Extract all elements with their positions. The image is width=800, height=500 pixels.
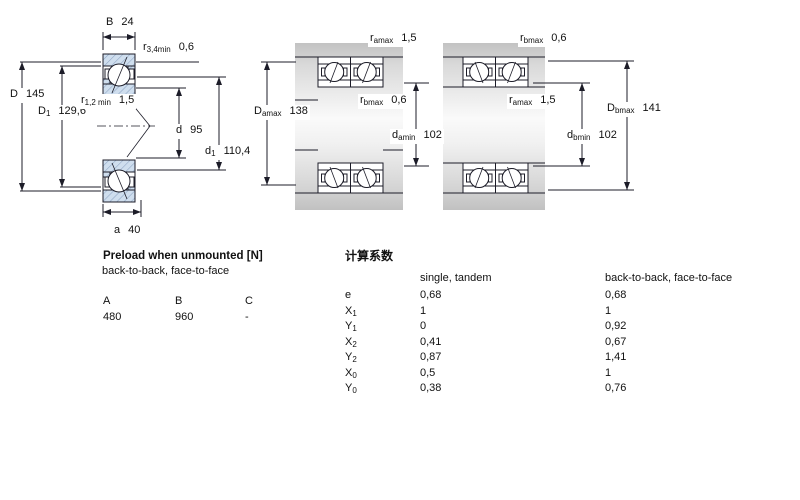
dim-subscript: amax [513, 98, 533, 107]
factor-value-single: 0,87 [420, 351, 441, 363]
factor-value-single: 0 [420, 320, 426, 332]
dim-label-Dbmax: Dbmax141 [605, 102, 663, 117]
dim-label-ramax-mid: ramax1,5 [368, 32, 419, 47]
paired-arrangement-view [443, 43, 634, 210]
dim-subscript: 1 [46, 109, 50, 118]
dim-value: 1,5 [540, 94, 555, 106]
dim-value: 1,5 [119, 94, 134, 106]
factor-row-X0: X00,51 [345, 367, 765, 383]
preload-subtitle: back-to-back, face-to-face [102, 265, 229, 278]
dim-subscript: 1,2 min [85, 98, 111, 107]
dim-label-d: d95 [174, 124, 204, 139]
dim-subscript: bmax [615, 106, 635, 115]
factor-symbol: X2 [345, 336, 357, 349]
factor-row-X2: X20,410,67 [345, 336, 765, 352]
factor-symbol: X0 [345, 367, 357, 380]
single-bearing-cross-section [97, 54, 155, 202]
preload-col-C: C [245, 295, 253, 308]
dim-label-B: B24 [104, 16, 136, 31]
dim-symbol: D [254, 105, 262, 117]
dim-value: 0,6 [391, 94, 406, 106]
factor-symbol: e [345, 289, 351, 302]
factor-symbol-sub: 2 [352, 355, 356, 364]
factor-value-paired: 1 [605, 305, 611, 317]
factor-row-X1: X111 [345, 305, 765, 321]
preload-value-A: 480 [103, 311, 121, 324]
factor-value-paired: 0,67 [605, 336, 626, 348]
dim-subscript: bmax [364, 98, 384, 107]
factor-row-Y2: Y20,871,41 [345, 351, 765, 367]
factor-symbol-sub: 1 [352, 309, 356, 318]
dim-value: 145 [26, 88, 44, 100]
dim-label-Damax: Damax138 [252, 105, 310, 120]
dim-symbol: B [106, 16, 113, 28]
dim-label-damin: damin102 [390, 129, 444, 144]
dim-label-r12min: r1,2 min1,5 [79, 94, 136, 109]
preload-col-A: A [103, 295, 110, 308]
factor-value-paired: 0,92 [605, 320, 626, 332]
factor-value-paired: 0,68 [605, 289, 626, 301]
dim-value: 40 [128, 224, 140, 236]
dim-label-r34min: r3,4min0,6 [141, 41, 196, 56]
factor-symbol-sub: 2 [352, 340, 356, 349]
dim-symbol: D [38, 105, 46, 117]
dim-value: 0,6 [551, 32, 566, 44]
dim-label-a: a40 [112, 224, 142, 239]
dim-subscript: amax [262, 109, 282, 118]
dim-symbol: a [114, 224, 120, 236]
dim-symbol: D [10, 88, 18, 100]
factor-value-single: 1 [420, 305, 426, 317]
dim-label-D: D145 [8, 88, 46, 103]
factor-row-e: e0,680,68 [345, 289, 765, 305]
dim-value: 110,4 [224, 145, 251, 157]
factor-value-single: 0,41 [420, 336, 441, 348]
factors-title: 计算系数 [345, 250, 393, 263]
factor-value-single: 0,68 [420, 289, 441, 301]
dim-label-d1: d1110,4 [203, 145, 252, 160]
dim-label-ramax-right: ramax1,5 [507, 94, 558, 109]
factor-symbol: Y0 [345, 382, 357, 395]
dim-value: 102 [598, 129, 616, 141]
preload-col-B: B [175, 295, 182, 308]
dim-value: 102 [423, 129, 441, 141]
dim-label-rbmax-right: rbmax0,6 [518, 32, 569, 47]
dim-value: 24 [121, 16, 133, 28]
factor-symbol: Y1 [345, 320, 357, 333]
factor-symbol-sub: 0 [352, 386, 356, 395]
factor-symbol: Y2 [345, 351, 357, 364]
dim-symbol: D [607, 102, 615, 114]
dim-subscript: amax [374, 36, 394, 45]
factor-value-single: 0,5 [420, 367, 435, 379]
factor-value-single: 0,38 [420, 382, 441, 394]
factors-table: e0,680,68 X111 Y100,92 X20,410,67 Y20,87… [345, 289, 765, 398]
factor-symbol-sub: 0 [352, 371, 356, 380]
tandem-arrangement-view [261, 43, 429, 210]
factor-row-Y1: Y100,92 [345, 320, 765, 336]
dim-value: 95 [190, 124, 202, 136]
dim-subscript: 1 [211, 149, 215, 158]
preload-title: Preload when unmounted [N] [103, 250, 263, 263]
dim-value: 1,5 [401, 32, 416, 44]
factors-col-back-to-back: back-to-back, face-to-face [605, 272, 732, 285]
dim-label-rbmax-mid: rbmax0,6 [358, 94, 409, 109]
dim-value: 141 [643, 102, 661, 114]
dim-subscript: amin [398, 133, 415, 142]
preload-value-C: - [245, 311, 249, 324]
factor-symbol-sub: 1 [352, 324, 356, 333]
dim-label-dbmin: dbmin102 [565, 129, 619, 144]
dim-subscript: 3,4min [147, 45, 171, 54]
factor-symbol: X1 [345, 305, 357, 318]
dim-subscript: bmin [573, 133, 590, 142]
factor-symbol-main: e [345, 289, 351, 301]
factor-row-Y0: Y00,380,76 [345, 382, 765, 398]
factor-value-paired: 1,41 [605, 351, 626, 363]
preload-value-B: 960 [175, 311, 193, 324]
bearing-specification-page: B24 r3,4min0,6 D145 D1129,6 r1,2 min1,5 … [0, 0, 800, 500]
dim-symbol: d [176, 124, 182, 136]
dim-subscript: bmax [524, 36, 544, 45]
dim-value: 0,6 [179, 41, 194, 53]
factor-value-paired: 0,76 [605, 382, 626, 394]
factors-col-single-tandem: single, tandem [420, 272, 492, 285]
dim-value: 138 [290, 105, 308, 117]
factor-value-paired: 1 [605, 367, 611, 379]
